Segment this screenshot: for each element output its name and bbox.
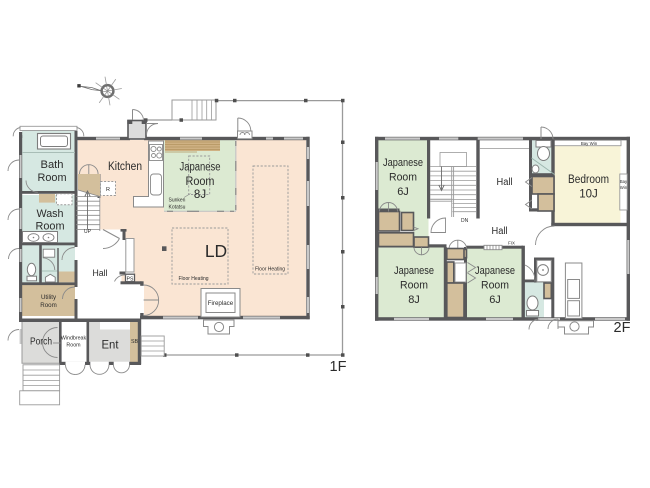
svg-text:10J: 10J (579, 189, 598, 201)
svg-text:6J: 6J (397, 186, 409, 198)
svg-text:Hall: Hall (492, 226, 508, 237)
svg-text:SB: SB (131, 339, 139, 345)
svg-text:Room: Room (36, 221, 65, 233)
svg-text:UP: UP (84, 229, 92, 235)
svg-text:Windbreak: Windbreak (61, 336, 87, 342)
svg-text:8J: 8J (408, 294, 420, 306)
svg-text:Utility: Utility (41, 294, 57, 301)
svg-text:Room: Room (66, 343, 81, 349)
svg-text:R: R (106, 187, 110, 193)
svg-text:2F: 2F (614, 320, 631, 336)
svg-text:Room: Room (38, 172, 67, 184)
svg-text:Room: Room (400, 280, 428, 292)
svg-text:Floor Heating: Floor Heating (255, 267, 285, 273)
svg-text:Bay Win: Bay Win (581, 141, 598, 146)
svg-text:LD: LD (205, 241, 227, 261)
svg-text:Win: Win (620, 185, 628, 190)
svg-text:FIX: FIX (508, 241, 515, 246)
svg-text:Bath: Bath (41, 159, 64, 171)
svg-text:Kotatsu: Kotatsu (169, 205, 186, 211)
svg-text:8J: 8J (194, 189, 206, 201)
svg-text:Hall: Hall (497, 177, 513, 188)
svg-text:Japanese: Japanese (180, 162, 221, 174)
svg-text:Fireplace: Fireplace (208, 300, 234, 307)
svg-text:Kitchen: Kitchen (108, 161, 142, 173)
svg-text:Floor Heating: Floor Heating (179, 276, 209, 282)
svg-text:Wash: Wash (37, 208, 64, 220)
svg-text:Room: Room (186, 176, 215, 188)
svg-text:Japanese: Japanese (394, 265, 434, 277)
svg-text:Japanese: Japanese (475, 265, 515, 277)
svg-text:Room: Room (481, 280, 509, 292)
svg-text:Sunken: Sunken (169, 198, 186, 204)
svg-text:Porch: Porch (30, 337, 52, 348)
svg-text:Room: Room (40, 302, 57, 309)
svg-text:Ent: Ent (102, 340, 120, 352)
svg-text:Bay: Bay (620, 179, 628, 184)
svg-text:DN: DN (461, 218, 469, 224)
svg-text:6J: 6J (489, 294, 501, 306)
svg-text:1F: 1F (330, 359, 347, 375)
svg-text:Hall: Hall (93, 268, 108, 278)
svg-text:Room: Room (389, 172, 417, 184)
svg-text:Bedroom: Bedroom (568, 174, 609, 186)
svg-text:Japanese: Japanese (383, 157, 423, 169)
svg-text:PS: PS (127, 277, 134, 283)
